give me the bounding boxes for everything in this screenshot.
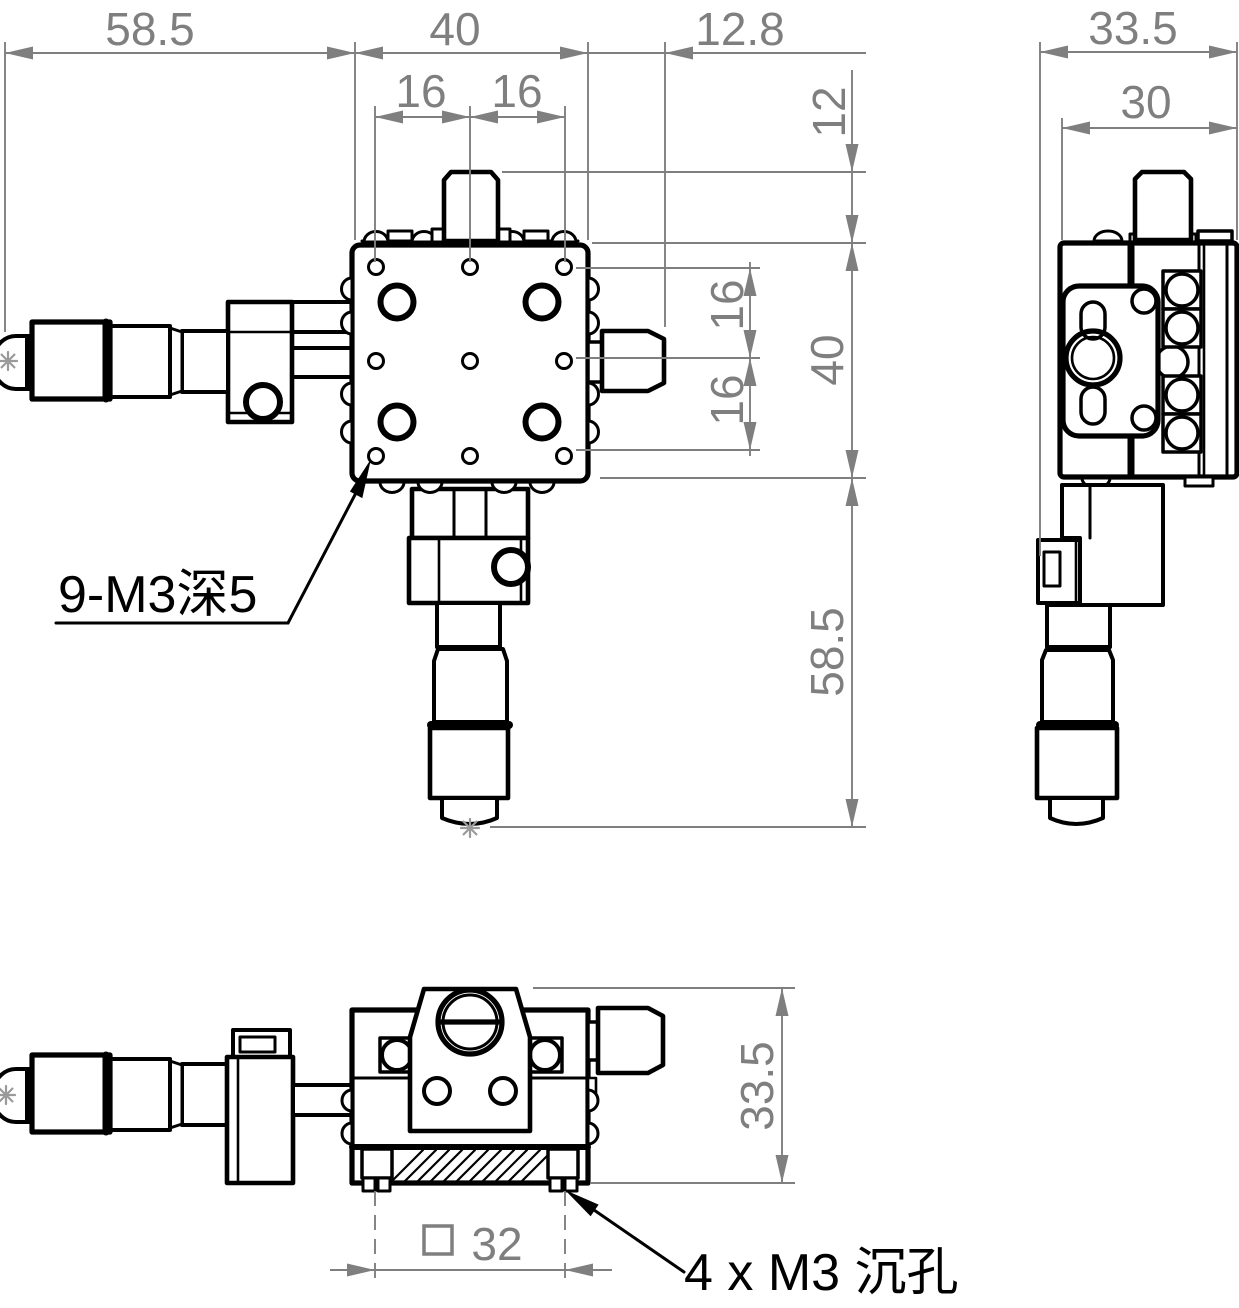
z-axis-knob <box>1135 172 1191 240</box>
body-plate <box>352 245 588 481</box>
micrometer-knurl <box>430 728 508 798</box>
dim-text-58-5-top: 58.5 <box>105 3 195 55</box>
ball-bump <box>418 482 442 493</box>
ball-bump <box>530 482 554 493</box>
ball-bump <box>588 383 599 405</box>
micrometer-knurl <box>32 1055 110 1132</box>
ball-bump <box>588 1123 598 1144</box>
bearing-cage <box>1163 414 1201 452</box>
dim-text-33-5-bottom: 33.5 <box>731 1041 783 1131</box>
ball-bump <box>364 232 388 243</box>
top-tab <box>524 231 548 241</box>
top-tab <box>388 231 412 241</box>
micrometer-barrel <box>1047 605 1110 647</box>
ball-bump <box>342 312 352 334</box>
ball-bump <box>342 1090 352 1111</box>
dim-text-16-top-left: 16 <box>395 65 446 117</box>
micrometer-barrel <box>182 1064 228 1125</box>
probe-marker <box>461 819 479 837</box>
x2-axis-knob <box>602 331 664 391</box>
side-tab <box>1185 477 1213 486</box>
bracket-bar <box>290 348 352 377</box>
ball-bump <box>1094 231 1122 241</box>
drawing-canvas: 58.5 40 12.8 16 16 12 16 16 40 58.5 <box>0 0 1239 1308</box>
micrometer-cap <box>1050 798 1103 824</box>
x2-axis-knob <box>598 1008 663 1073</box>
micrometer-barrel <box>437 603 500 647</box>
dim-text-40-top: 40 <box>429 3 480 55</box>
micrometer-barrel <box>182 331 228 392</box>
ball-bump <box>342 1123 352 1144</box>
ball-bump <box>342 278 352 300</box>
counterbore-note-text: 4 x M3 沉孔 <box>684 1244 959 1302</box>
ball-bump <box>588 421 599 443</box>
mount-tab <box>362 1149 392 1178</box>
stage-body <box>342 989 598 1191</box>
bearing-cage <box>1163 309 1201 347</box>
dim-text-32: 32 <box>471 1218 522 1270</box>
side-tab <box>1198 231 1232 241</box>
ball-bump <box>342 421 352 443</box>
micrometer-thimble <box>434 649 507 722</box>
z-axis-knob <box>444 172 498 241</box>
bearing-cage <box>1163 376 1201 414</box>
micrometer-sleeve <box>110 326 170 397</box>
micrometer-thimble <box>1042 650 1113 722</box>
dim-text-30-side: 30 <box>1120 76 1171 128</box>
ball-bump <box>552 232 576 243</box>
counterbore-foot <box>378 1178 390 1191</box>
stage-body <box>352 245 588 481</box>
bearing-cage <box>1163 271 1201 309</box>
thread-note-text: 9-M3深5 <box>58 566 257 624</box>
ball-bump <box>492 482 516 493</box>
ball-bump <box>342 383 352 405</box>
bearing-ball <box>1156 346 1188 378</box>
dim-text-58-5-right: 58.5 <box>801 607 853 697</box>
ball-bump <box>588 312 599 334</box>
dim-text-16-right-upper: 16 <box>701 279 753 330</box>
ball-bump <box>380 482 404 493</box>
clamp-screw-hole <box>246 385 280 419</box>
dim-text-16-top-right: 16 <box>491 65 542 117</box>
ball-bump <box>588 1090 598 1111</box>
carrier-plate <box>1063 286 1158 436</box>
dim-text-16-right-lower: 16 <box>701 374 753 425</box>
probe-marker <box>0 352 17 370</box>
dim-text-12: 12 <box>803 86 855 137</box>
mount-tab <box>548 1149 578 1178</box>
counterbore-foot <box>550 1178 562 1191</box>
dim-text-12-8: 12.8 <box>695 3 785 55</box>
micrometer-sleeve <box>110 1059 170 1130</box>
right-knob-assembly <box>588 1008 663 1073</box>
drawing-page: 58.5 40 12.8 16 16 12 16 16 40 58.5 <box>0 0 1239 1308</box>
counterbore-foot <box>363 1178 375 1191</box>
clamp-screw-hole <box>494 550 528 584</box>
micrometer-knurl <box>1037 728 1117 798</box>
stage-body <box>1060 243 1237 477</box>
dim-text-33-5-side: 33.5 <box>1088 2 1178 54</box>
counterbore-foot <box>565 1178 577 1191</box>
ball-bump <box>588 278 599 300</box>
dim-text-40-right: 40 <box>801 334 853 385</box>
mount-block <box>412 489 528 538</box>
micrometer-knurl <box>32 322 110 399</box>
